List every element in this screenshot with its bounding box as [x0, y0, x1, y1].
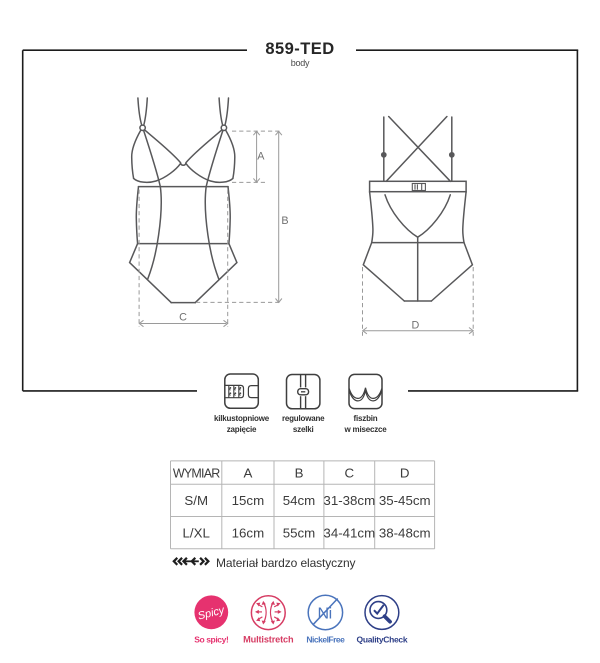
- svg-text:NickelFree: NickelFree: [306, 634, 345, 644]
- svg-text:A: A: [243, 465, 252, 480]
- svg-text:w miseczce: w miseczce: [343, 425, 387, 434]
- svg-text:zapięcie: zapięcie: [227, 425, 257, 434]
- svg-text:C: C: [344, 465, 354, 480]
- svg-text:fiszbin: fiszbin: [354, 414, 378, 423]
- svg-text:B: B: [281, 215, 288, 227]
- svg-text:859-TED: 859-TED: [265, 40, 334, 58]
- svg-text:kilkustopniowe: kilkustopniowe: [214, 414, 270, 423]
- svg-text:D: D: [400, 465, 410, 480]
- svg-text:54cm: 54cm: [283, 493, 316, 508]
- svg-text:regulowane: regulowane: [282, 414, 325, 423]
- svg-text:34-41cm: 34-41cm: [323, 526, 375, 541]
- svg-text:L/XL: L/XL: [183, 526, 210, 541]
- svg-text:A: A: [257, 151, 265, 163]
- svg-text:D: D: [411, 319, 419, 331]
- svg-text:16cm: 16cm: [232, 526, 265, 541]
- svg-text:QualityCheck: QualityCheck: [357, 634, 408, 644]
- svg-text:WYMIAR: WYMIAR: [173, 466, 220, 480]
- svg-text:body: body: [291, 58, 310, 68]
- svg-text:55cm: 55cm: [283, 526, 316, 541]
- svg-text:Multistretch: Multistretch: [243, 634, 294, 644]
- svg-text:C: C: [179, 311, 187, 323]
- svg-text:Materiał bardzo elastyczny: Materiał bardzo elastyczny: [216, 556, 356, 570]
- svg-text:szelki: szelki: [293, 425, 314, 434]
- svg-text:S/M: S/M: [184, 493, 208, 508]
- svg-text:B: B: [295, 465, 304, 480]
- svg-text:38-48cm: 38-48cm: [379, 526, 431, 541]
- svg-text:So spicy!: So spicy!: [194, 634, 229, 644]
- svg-text:15cm: 15cm: [232, 493, 265, 508]
- svg-text:35-45cm: 35-45cm: [379, 493, 431, 508]
- svg-text:31-38cm: 31-38cm: [323, 493, 375, 508]
